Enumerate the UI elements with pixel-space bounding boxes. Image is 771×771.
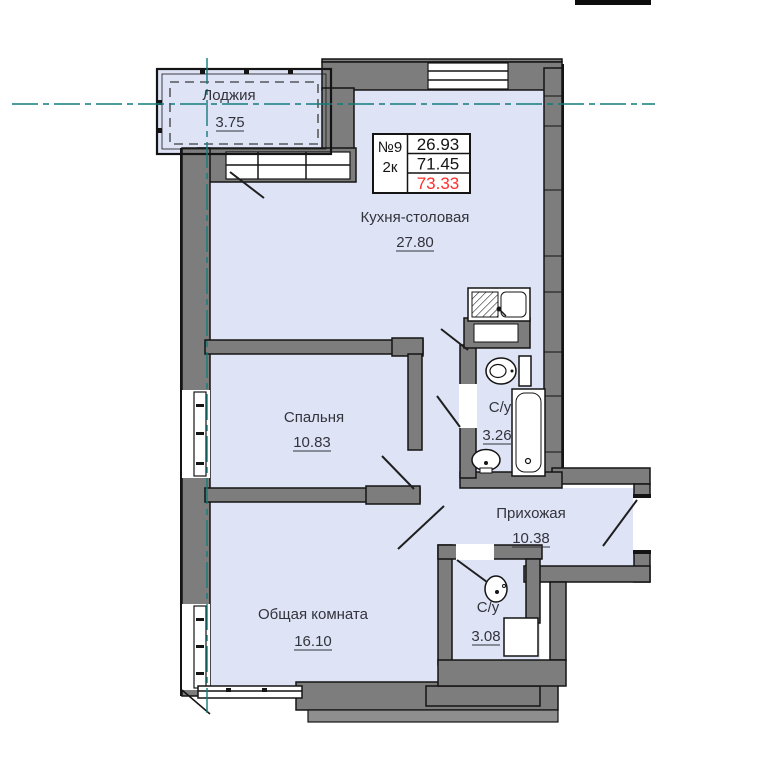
kitchen-sink-icon	[468, 288, 530, 321]
wall-kitchen-bedroom	[205, 340, 423, 354]
bathroom-top-name: С/у	[489, 399, 512, 416]
unit-number: №9	[378, 139, 402, 156]
loggia-area: 3.75	[215, 114, 244, 131]
wall-bath2-left	[438, 545, 452, 665]
bedroom-area: 10.83	[293, 434, 331, 451]
kitchen-area: 27.80	[396, 234, 434, 251]
living-name: Общая комната	[258, 606, 369, 623]
bedroom-name: Спальня	[284, 409, 344, 426]
wall-right	[544, 68, 562, 476]
wall-hall-bottom	[524, 566, 650, 582]
wall-left-outer-line	[180, 148, 182, 696]
adjacent-structure-line	[575, 0, 651, 5]
wall-bath2-bottom	[438, 660, 566, 686]
bath2-door-opening	[456, 544, 494, 560]
wall-connector	[322, 88, 354, 152]
hallway-area: 10.38	[512, 530, 550, 547]
bathtub-icon	[512, 389, 545, 476]
bathroom-top-area: 3.26	[482, 427, 511, 444]
living-area: 16.10	[294, 633, 332, 650]
loggia-name: Лоджия	[202, 87, 255, 104]
wall-right-outer-line	[562, 64, 564, 478]
unit-area-1: 26.93	[417, 135, 460, 154]
unit-area-2: 71.45	[417, 155, 460, 174]
floor-plan-drawing: Лоджия 3.75 Кухня-столовая 27.80 Спальня…	[0, 0, 771, 771]
toilet-icon	[486, 356, 531, 386]
entry-door-jamb	[633, 494, 651, 498]
entry-door-jamb	[633, 550, 651, 554]
wall-bath2-right	[526, 559, 540, 623]
bathroom-bottom-area: 3.08	[471, 628, 500, 645]
unit-rooms-type: 2к	[383, 159, 398, 176]
wall-bottom-lower-band	[308, 710, 558, 722]
wall-bedroom-living-end	[366, 486, 420, 504]
wall-bedroom-corridor	[408, 354, 422, 450]
kitchen-top-window	[428, 63, 508, 89]
living-bottom-glazing	[198, 686, 302, 698]
bath1-door-opening	[459, 384, 477, 428]
kitchen-name: Кухня-столовая	[361, 209, 470, 226]
washing-machine-icon	[504, 618, 538, 656]
unit-info-table: №9 2к 26.93 71.45 73.33	[373, 134, 470, 193]
bathroom-bottom-name: С/у	[477, 599, 500, 616]
duct-shaft-inner	[474, 324, 518, 342]
unit-area-total: 73.33	[417, 174, 460, 193]
wall-hall-top	[552, 468, 650, 484]
entry-door-opening	[633, 498, 651, 550]
wall-stub-below-hall	[550, 582, 566, 660]
hallway-name: Прихожая	[496, 505, 566, 522]
floor-plan-page: Лоджия 3.75 Кухня-столовая 27.80 Спальня…	[0, 0, 771, 771]
